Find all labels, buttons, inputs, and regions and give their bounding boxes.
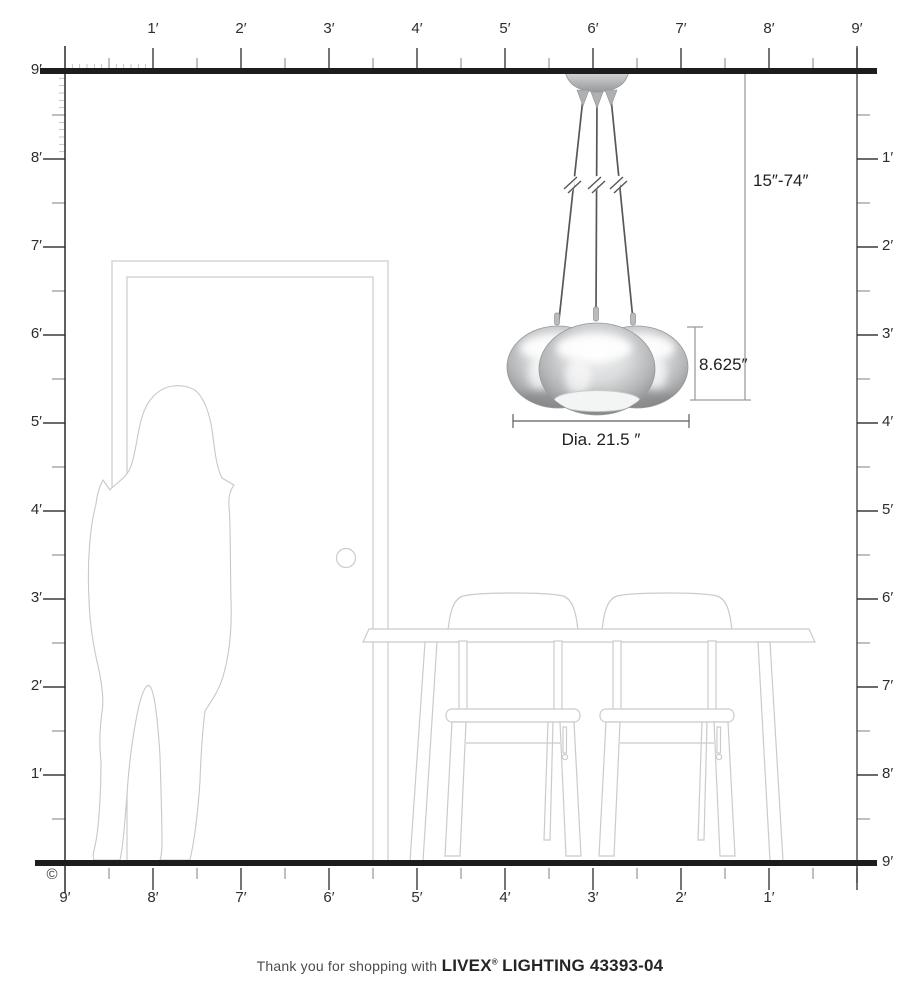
shade-connector [594, 307, 599, 321]
ruler-label-top-1: 1′ [139, 20, 167, 38]
ruler-label-bottom-3: 3′ [579, 889, 607, 907]
ruler-label-bottom-6: 6′ [315, 889, 343, 907]
ruler-label-left-7: 7′ [12, 237, 42, 255]
scale-diagram-canvas [0, 0, 920, 945]
ruler-label-right-9: 9′ [882, 853, 912, 871]
hanging-range-dimension: 15″-74″ [753, 171, 809, 191]
diameter-dim-line [513, 414, 689, 428]
ruler-label-top-8: 8′ [755, 20, 783, 38]
table-top [363, 629, 815, 642]
ruler-label-top-9: 9′ [843, 20, 871, 38]
shade-connector [555, 313, 560, 325]
ruler-label-bottom-9: 9′ [51, 889, 79, 907]
ruler-label-left-2: 2′ [12, 677, 42, 695]
chair [445, 641, 581, 856]
ruler-label-right-3: 3′ [882, 325, 912, 343]
ruler-label-bottom-2: 2′ [667, 889, 695, 907]
ruler-label-left-9: 9′ [12, 61, 42, 79]
footer-thanks-text: Thank you for shopping with [257, 958, 438, 974]
ruler-label-bottom-8: 8′ [139, 889, 167, 907]
ruler-label-left-5: 5′ [12, 413, 42, 431]
pendant-cords [559, 98, 633, 320]
dimension-lines-vertical [687, 74, 751, 400]
pendant-shades [507, 307, 688, 422]
ruler-label-right-4: 4′ [882, 413, 912, 431]
fixture-height-dimension: 8.625″ [699, 355, 748, 375]
ruler-label-left-6: 6′ [12, 325, 42, 343]
ruler-label-right-5: 5′ [882, 501, 912, 519]
chair-backrests [448, 593, 732, 631]
diagram-page: 1′2′3′4′5′6′7′8′9′9′8′7′6′5′4′3′2′1′1′2′… [0, 0, 920, 1000]
ruler-label-top-2: 2′ [227, 20, 255, 38]
ruler-label-right-6: 6′ [882, 589, 912, 607]
chairs [445, 641, 735, 856]
ruler-label-top-5: 5′ [491, 20, 519, 38]
copyright-symbol: © [43, 866, 61, 883]
ruler-label-top-6: 6′ [579, 20, 607, 38]
footer-product-number: LIGHTING 43393-04 [502, 956, 663, 975]
ruler-label-left-4: 4′ [12, 501, 42, 519]
ruler-label-right-1: 1′ [882, 149, 912, 167]
fixture-diameter-dimension: Dia. 21.5 ″ [516, 430, 686, 450]
ruler-label-bottom-7: 7′ [227, 889, 255, 907]
ruler-label-right-7: 7′ [882, 677, 912, 695]
ruler-label-bottom-1: 1′ [755, 889, 783, 907]
chair [599, 641, 735, 856]
ruler-label-right-2: 2′ [882, 237, 912, 255]
ruler-label-bottom-5: 5′ [403, 889, 431, 907]
ruler-label-top-7: 7′ [667, 20, 695, 38]
dining-table [363, 629, 815, 861]
door-knob [337, 549, 356, 568]
ruler-label-top-4: 4′ [403, 20, 431, 38]
chair-backrest [448, 593, 578, 631]
ruler-label-bottom-4: 4′ [491, 889, 519, 907]
chair-backrest [602, 593, 732, 631]
ruler-label-top-3: 3′ [315, 20, 343, 38]
ruler-label-left-1: 1′ [12, 765, 42, 783]
ruler-label-left-8: 8′ [12, 149, 42, 167]
ruler-label-left-3: 3′ [12, 589, 42, 607]
pendant-canopy [565, 71, 629, 108]
ruler-label-right-8: 8′ [882, 765, 912, 783]
footer: Thank you for shopping with LIVEX® LIGHT… [0, 956, 920, 976]
table-leg-left [410, 642, 437, 861]
shade-connector [631, 313, 636, 325]
registered-trademark-symbol: ® [492, 958, 498, 967]
table-leg-right [758, 642, 783, 861]
footer-brand: LIVEX [442, 956, 492, 975]
